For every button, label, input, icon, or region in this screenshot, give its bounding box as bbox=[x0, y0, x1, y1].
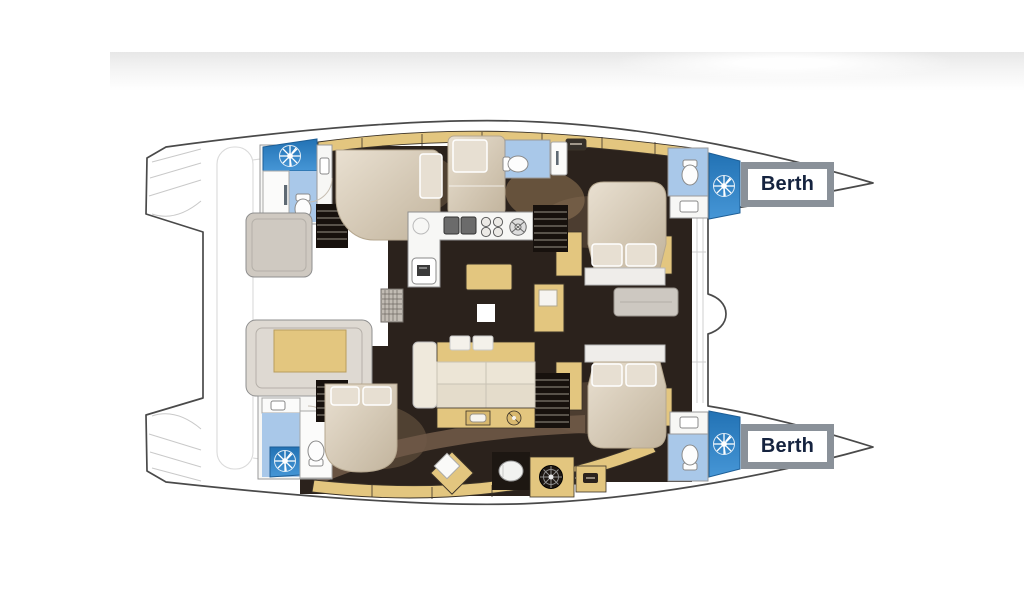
top-mid-cabin bbox=[448, 136, 505, 215]
shower-rose-icon bbox=[714, 434, 735, 455]
pillow bbox=[450, 336, 470, 350]
toilet-icon bbox=[682, 160, 698, 185]
cockpit-locker bbox=[576, 466, 606, 492]
sink-icon bbox=[461, 217, 476, 234]
pillow bbox=[453, 140, 487, 172]
berth-label-top: Berth bbox=[741, 162, 834, 207]
toilet-icon bbox=[503, 156, 528, 172]
sink-icon bbox=[271, 401, 285, 410]
hob-dial-icon bbox=[510, 219, 526, 235]
bed-forward-bottom bbox=[585, 345, 666, 448]
vent-grate-icon bbox=[381, 289, 403, 322]
pillow bbox=[626, 364, 656, 386]
sink-icon bbox=[320, 158, 329, 174]
stairs-icon bbox=[533, 205, 568, 252]
toilet-icon bbox=[308, 441, 324, 466]
cockpit-seat-stool bbox=[492, 452, 530, 490]
pillow bbox=[592, 364, 622, 386]
sink-icon bbox=[680, 201, 698, 212]
bathroom-door bbox=[551, 142, 567, 175]
berth-label-top-text: Berth bbox=[761, 173, 814, 196]
shower-rose-icon bbox=[714, 176, 735, 197]
pillow bbox=[626, 244, 656, 266]
shower-rose-icon bbox=[280, 146, 301, 167]
bed-forward-top bbox=[585, 182, 666, 285]
shower-rose-icon bbox=[275, 451, 296, 472]
pillow bbox=[473, 336, 493, 350]
lounge-cushion bbox=[274, 330, 346, 372]
pillow bbox=[363, 387, 391, 405]
coffee-table bbox=[466, 264, 512, 290]
top-mid-bathroom bbox=[503, 140, 567, 178]
sink-icon bbox=[680, 417, 698, 428]
sink-icon bbox=[444, 217, 459, 234]
berth-label-bottom: Berth bbox=[741, 424, 834, 469]
pillow bbox=[592, 244, 622, 266]
sofa-cabinet bbox=[437, 408, 535, 428]
saloon-sofa bbox=[413, 336, 535, 408]
helm-wheel-icon bbox=[530, 457, 574, 497]
bow-bathroom-bottom bbox=[668, 411, 740, 481]
berth-label-bottom-text: Berth bbox=[761, 435, 814, 458]
cockpit-module bbox=[246, 213, 312, 277]
bow-bathroom-top bbox=[668, 148, 740, 219]
pillow bbox=[420, 154, 442, 198]
stairs-icon bbox=[533, 373, 570, 428]
pillow bbox=[331, 387, 359, 405]
toilet-icon bbox=[682, 445, 698, 470]
canvas: Berth Berth bbox=[0, 0, 1024, 600]
floor-plan-svg bbox=[0, 0, 1024, 600]
bottom-aft-cabin bbox=[316, 380, 397, 472]
